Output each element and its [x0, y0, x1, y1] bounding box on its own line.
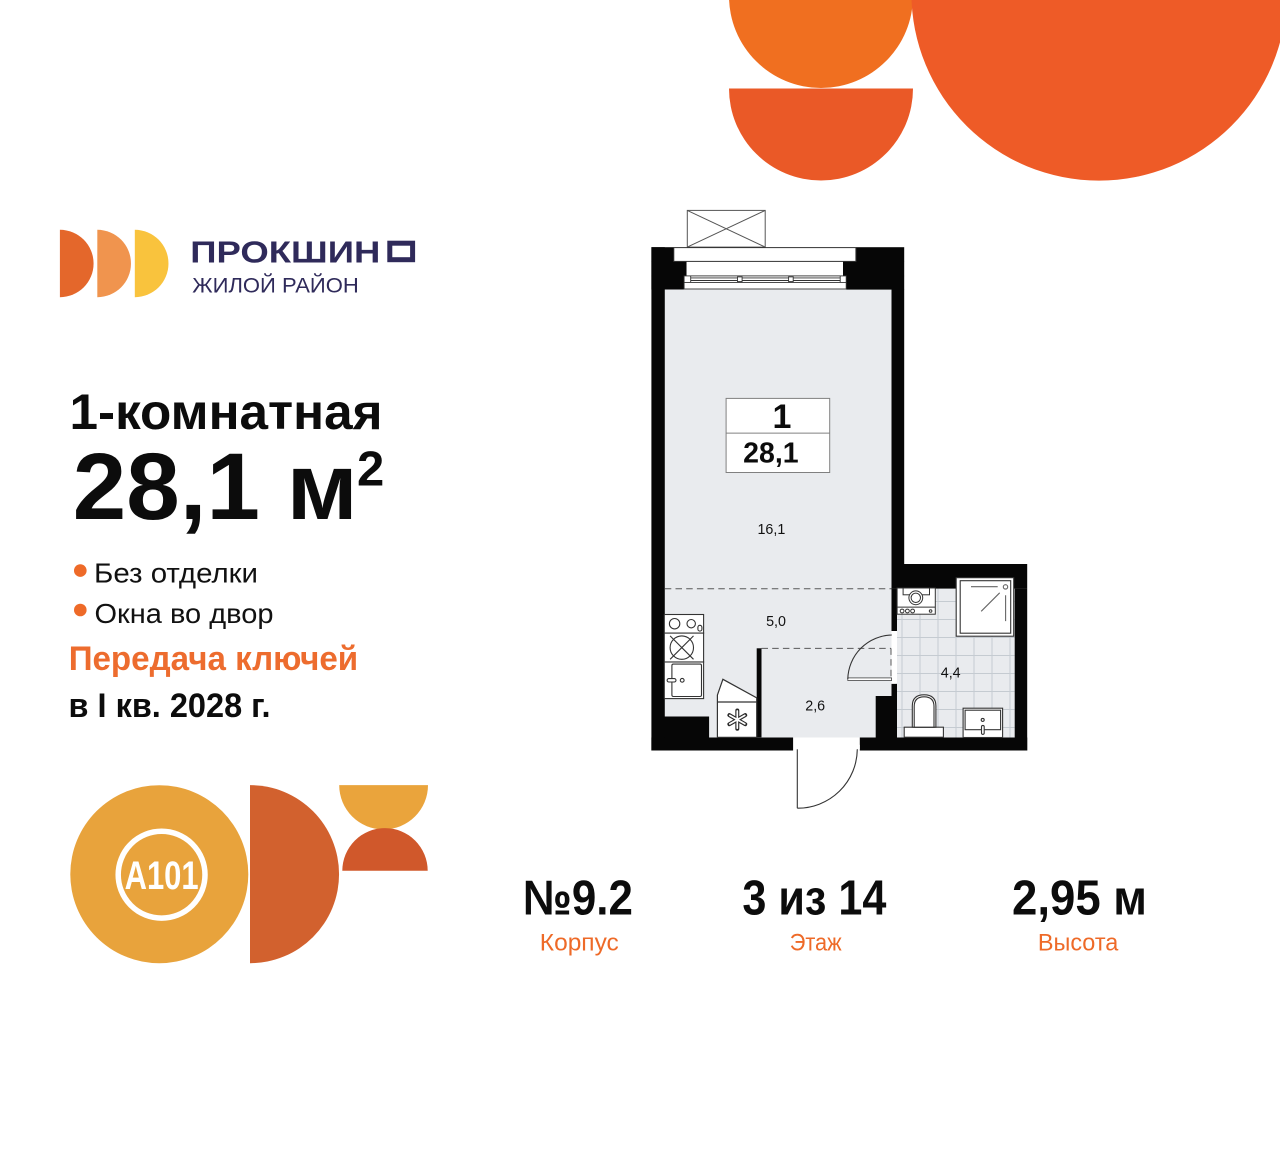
svg-text:16,1: 16,1: [757, 522, 785, 538]
svg-text:1: 1: [772, 398, 791, 436]
svg-text:28,1: 28,1: [743, 438, 799, 470]
svg-text:4,4: 4,4: [941, 666, 961, 682]
svg-text:5,0: 5,0: [766, 614, 786, 630]
svg-text:2,6: 2,6: [805, 699, 825, 715]
